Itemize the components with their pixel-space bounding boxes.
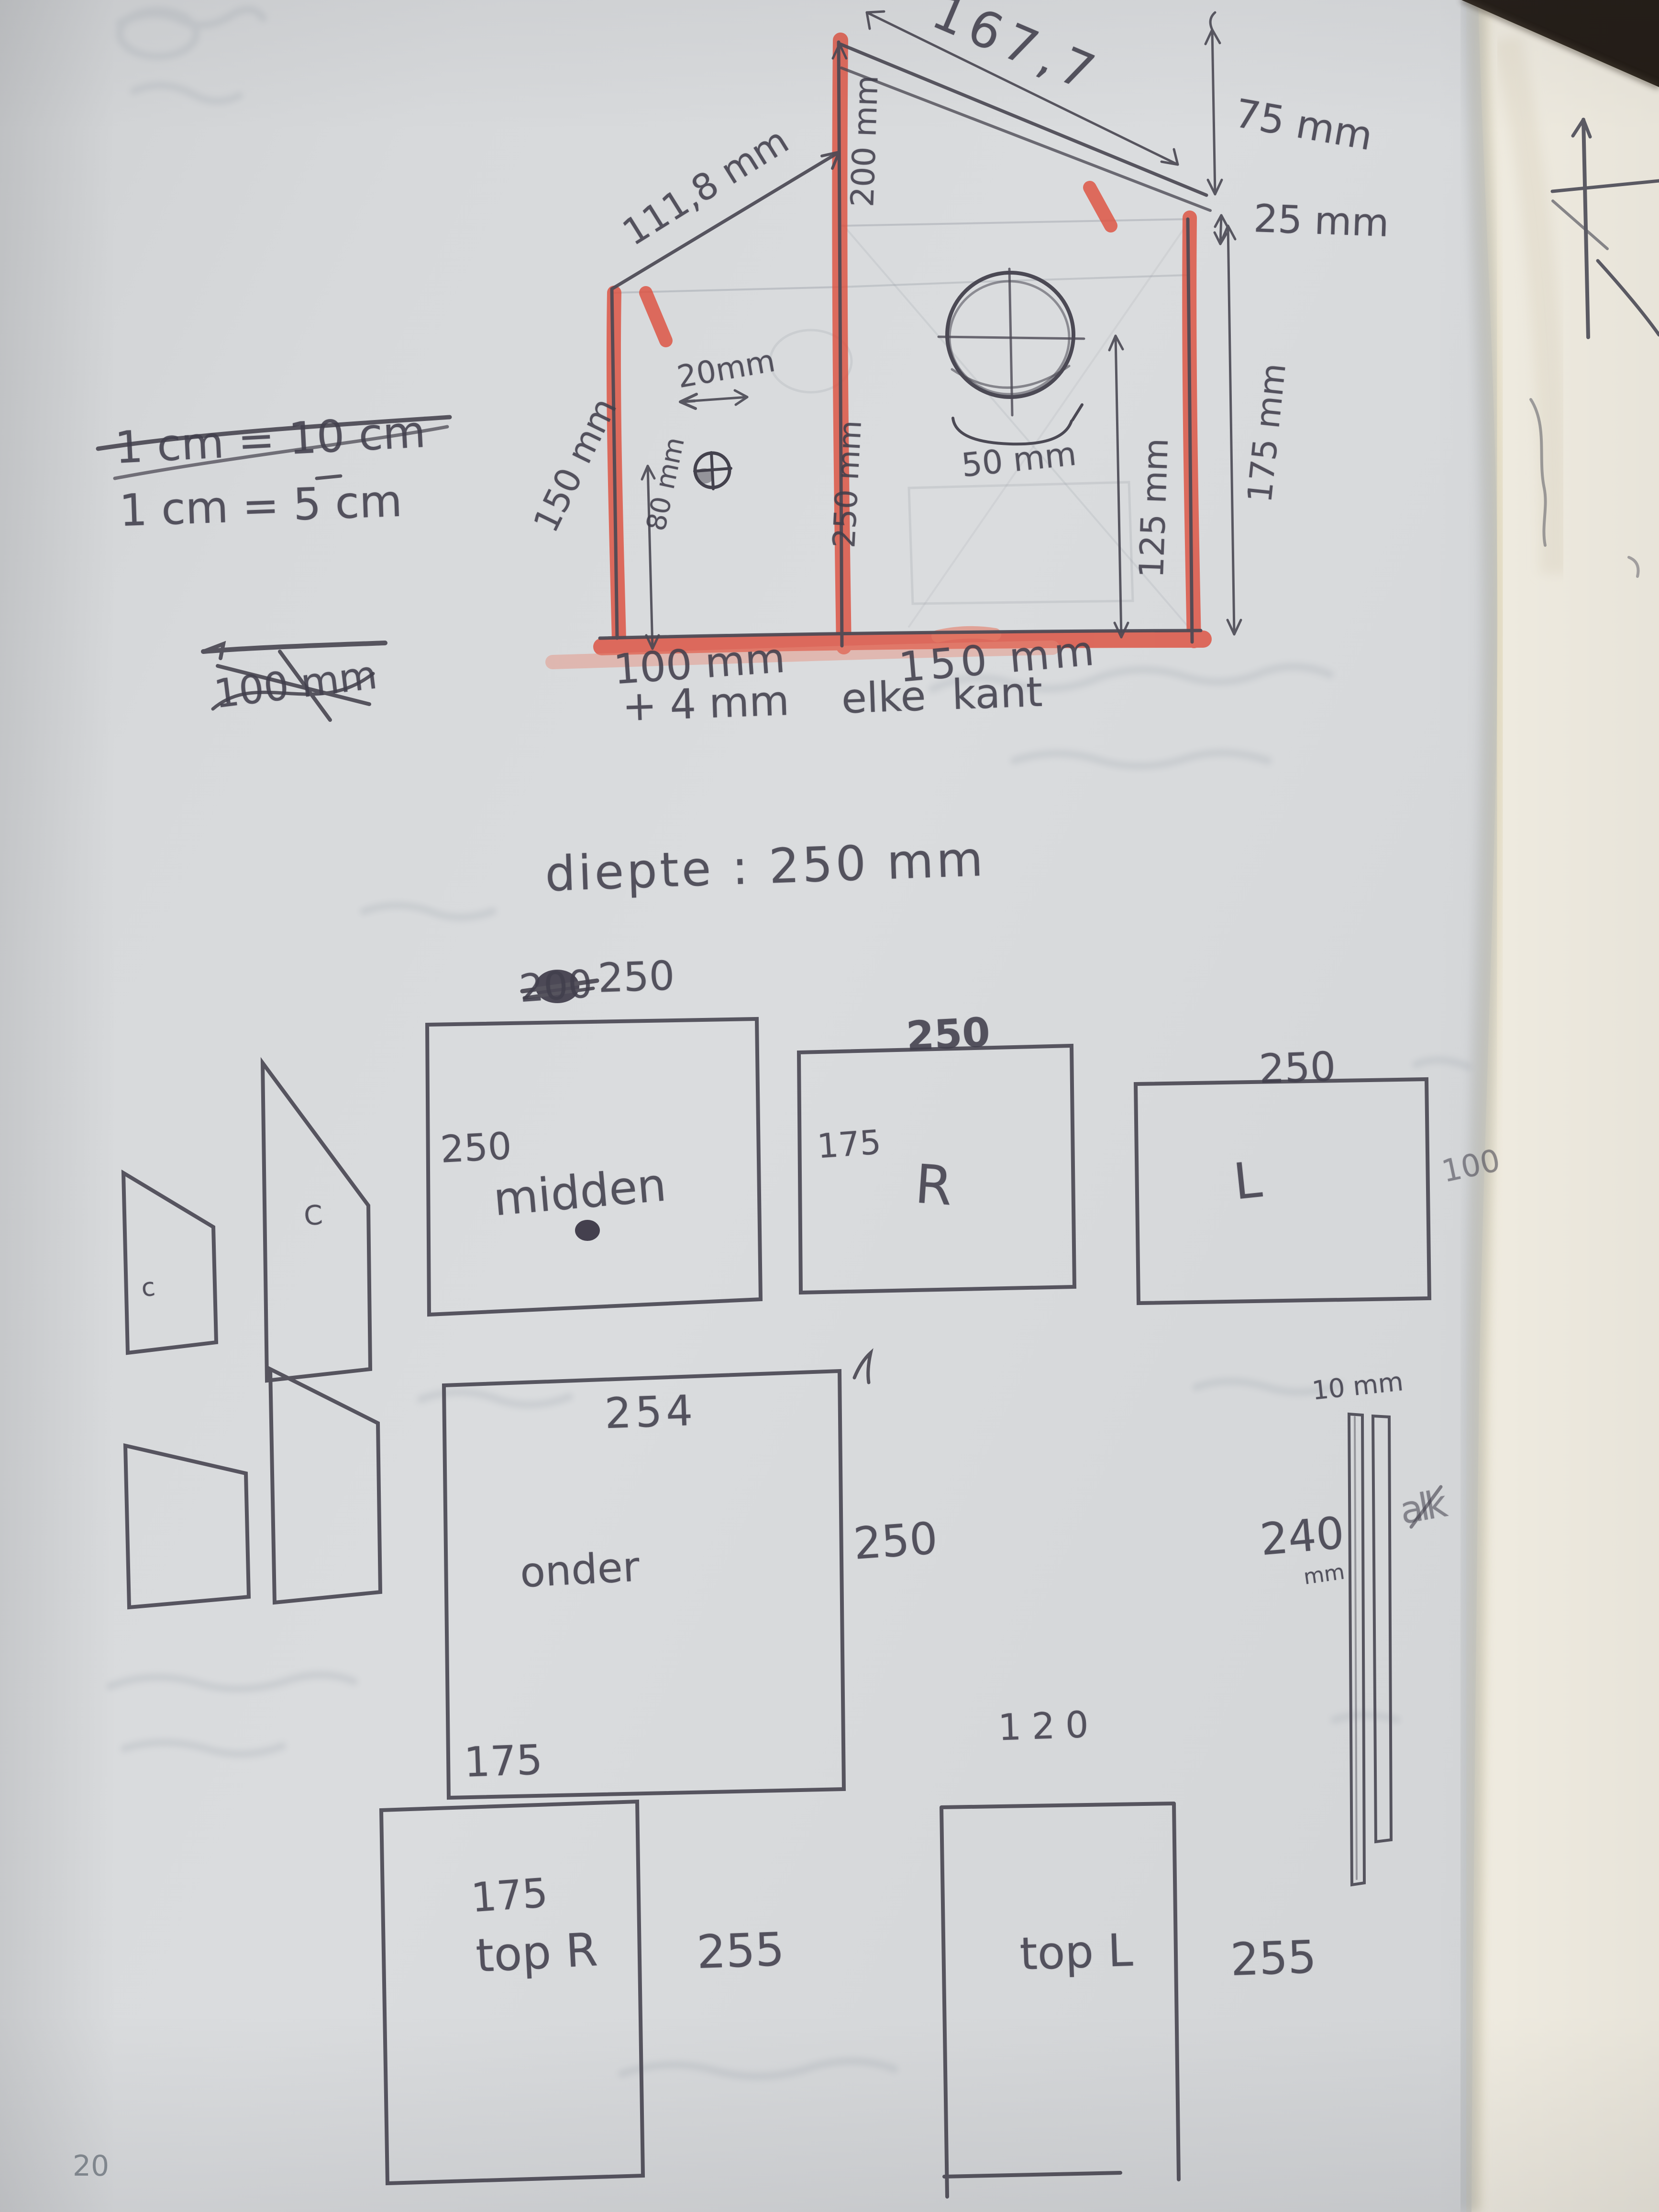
side-profile-small-2: [125, 1446, 249, 1607]
top-l-rect: [941, 1803, 1179, 2197]
erased-construction-lines: [614, 219, 1190, 629]
arrow-175: [1228, 226, 1234, 634]
strip-length-dim: 240: [1259, 1511, 1346, 1562]
strip-length-unit: mm: [1302, 1561, 1346, 1588]
strip-2: [1373, 1416, 1391, 1842]
side-profile-large-2: [270, 1369, 380, 1603]
scale-note-new: 1 cm = 5 cm: [119, 479, 403, 533]
part-shapes: [123, 1019, 1429, 2197]
midden-name: midden: [492, 1161, 668, 1222]
strikethrough-marks: [98, 417, 1441, 1527]
depth-title: diepte : 250 mm: [544, 835, 987, 898]
ridge-dim: 200 mm: [847, 75, 883, 208]
midden-top-dim: 250: [597, 955, 675, 998]
l-name: L: [1231, 1154, 1264, 1206]
right-inner-dim: 125 mm: [1135, 438, 1173, 579]
r-height-dim: 175: [816, 1125, 882, 1163]
side-profile-small-1: [123, 1173, 216, 1353]
r-name: R: [913, 1157, 954, 1213]
midden-top-old: 200: [518, 965, 594, 1008]
l-top-dim: 250: [1258, 1046, 1336, 1089]
l-rect: [1136, 1079, 1429, 1303]
top-r-name: top R: [475, 1926, 598, 1979]
entrance-hole: [939, 269, 1084, 415]
gap-dim: 25 mm: [1253, 199, 1390, 243]
bleed-through-marks: [110, 10, 1469, 2076]
divider-dim: 250 mm: [829, 420, 866, 549]
checkmark: [854, 1353, 871, 1382]
midden-width-dim: 250: [440, 1128, 513, 1169]
onder-top-dim: 254: [604, 1390, 697, 1435]
onder-height-dim: 250: [852, 1516, 939, 1566]
top-r-height-dim: 255: [696, 1926, 785, 1975]
side-small-label-1: c: [140, 1275, 156, 1301]
sketch-canvas: [0, 0, 1659, 2212]
screw-mark: [695, 453, 731, 489]
top-r-top-dim: 175: [463, 1739, 543, 1783]
top-r-rect: [381, 1802, 643, 2183]
red-tick-left-roof: [646, 293, 666, 341]
notebook-page-photo: 1 cm = 10 cm 1 cm = 5 cm 100 mm 111,8 mm…: [0, 0, 1659, 2212]
under-page: [1466, 0, 1659, 2212]
page-number: 20: [73, 2152, 109, 2180]
side-large-label-1: C: [303, 1202, 324, 1230]
onder-name: onder: [519, 1547, 641, 1594]
arrow-125: [1116, 336, 1121, 637]
r-top-dim: 250: [905, 1012, 991, 1056]
top-l-height-dim: 255: [1230, 1935, 1317, 1983]
onder-below-dim: 175: [470, 1873, 549, 1918]
top-l-name: top L: [1019, 1928, 1133, 1977]
arrow-75: [1212, 30, 1215, 194]
illegible-scribble: alk: [1397, 1486, 1447, 1530]
top-l-top-dim: 120: [997, 1706, 1100, 1746]
